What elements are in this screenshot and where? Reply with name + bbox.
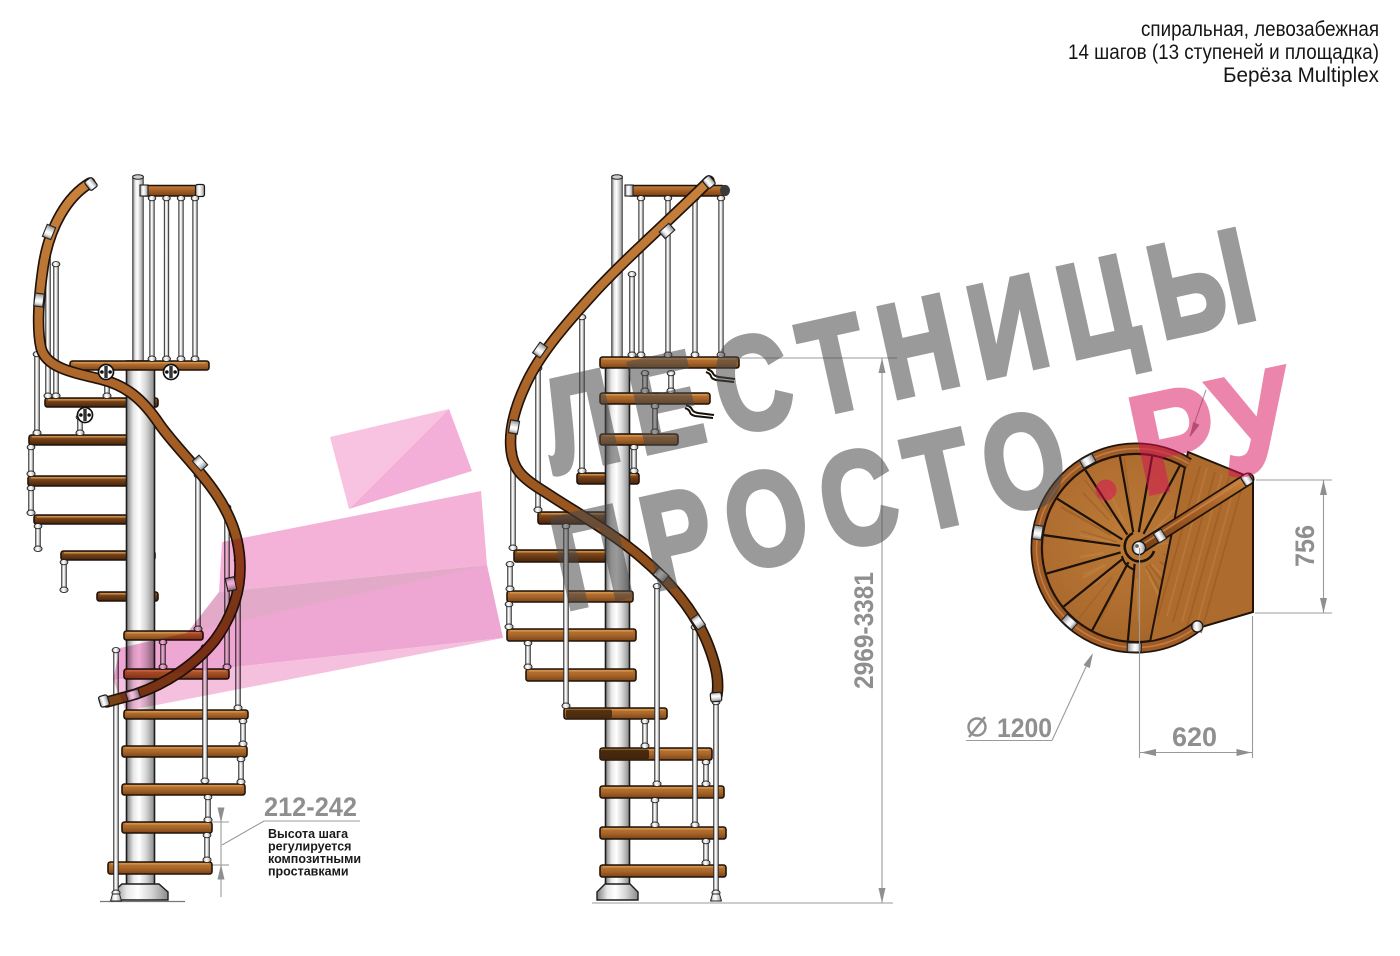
svg-text:Берёза Multiplex: Берёза Multiplex	[1223, 64, 1379, 87]
svg-text:2969-3381: 2969-3381	[849, 572, 879, 689]
svg-text:620: 620	[1172, 722, 1217, 752]
svg-text:212-242: 212-242	[264, 792, 357, 822]
svg-text:1200: 1200	[997, 713, 1052, 743]
svg-text:проставками: проставками	[268, 865, 349, 879]
svg-text:756: 756	[1290, 525, 1320, 567]
svg-text:14 шагов (13 ступеней и площад: 14 шагов (13 ступеней и площадка)	[1068, 41, 1379, 64]
svg-text:спиральная, левозабежная: спиральная, левозабежная	[1141, 18, 1379, 41]
